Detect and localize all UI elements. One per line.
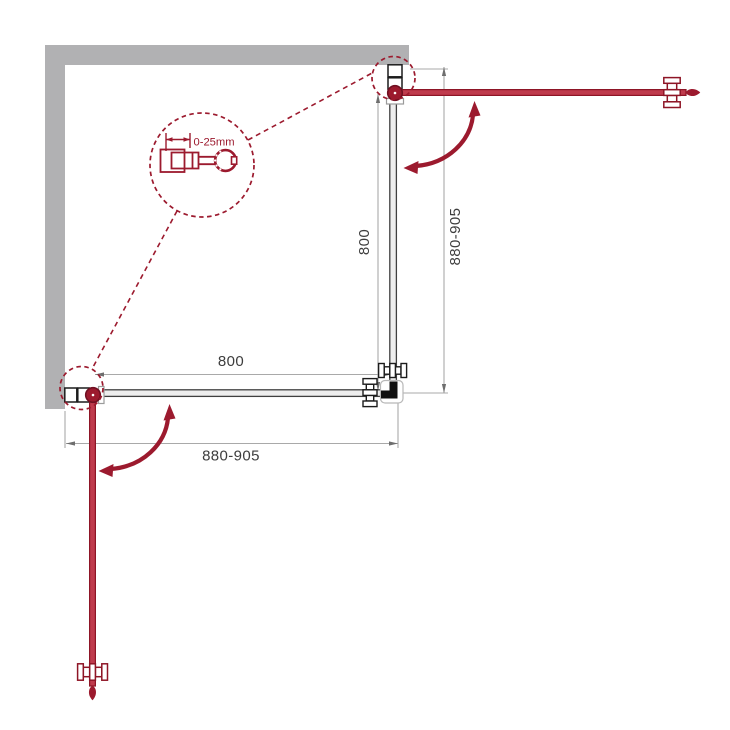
door-bottom-open-glass xyxy=(90,400,96,686)
arrow-880v-top xyxy=(442,67,446,76)
handle-waist xyxy=(395,367,401,374)
shower-enclosure-diagram: 800 880-905 800 880-905 0-25mm xyxy=(0,0,730,730)
dim-label-right-size: 800 xyxy=(356,229,373,255)
hinge-left-pin xyxy=(92,394,95,397)
door-bottom-open xyxy=(78,400,108,700)
handle-flange xyxy=(664,90,680,96)
handle-flange xyxy=(102,664,108,680)
glass-door-bottom-closed xyxy=(103,390,390,397)
handle-waist xyxy=(95,667,101,676)
door-top-open-glass xyxy=(400,90,686,96)
handle-waist xyxy=(667,95,676,101)
handle-flange xyxy=(401,364,407,378)
swing-arrowhead-up-icon xyxy=(164,404,176,421)
handle-top-open xyxy=(664,78,680,108)
wall-profiles xyxy=(65,65,402,402)
handle-flange xyxy=(390,364,396,378)
handle-flange xyxy=(664,78,680,84)
handle-flange xyxy=(363,401,377,407)
swing-arrowhead-left-icon xyxy=(99,464,114,477)
wall-profile-top-outer xyxy=(388,65,402,77)
handle-flange xyxy=(664,102,680,108)
corner-connector xyxy=(381,381,404,404)
handle-bottom-open xyxy=(78,664,108,680)
dim-label-bottom-size: 800 xyxy=(218,353,244,370)
handle-flange xyxy=(363,379,377,385)
handle-flange xyxy=(78,664,84,680)
handle-flange xyxy=(379,364,385,378)
leader-line-to-top-profile xyxy=(248,72,374,140)
arrow-880v-bottom xyxy=(442,384,446,393)
arrow-880h-right xyxy=(389,441,398,445)
arrow-880h-left xyxy=(66,441,75,445)
door-bottom-edge-tip xyxy=(89,686,96,700)
handle-flange xyxy=(90,664,96,680)
swing-arrow-top xyxy=(404,101,481,174)
detail-arrow-left xyxy=(166,137,173,142)
dim-label-right-overall: 880-905 xyxy=(447,208,464,266)
handle-waist xyxy=(83,667,89,676)
wall-profile-left-outer xyxy=(65,388,77,402)
handle-waist xyxy=(366,395,373,401)
swing-arrow-bottom xyxy=(99,404,176,477)
handle-flange xyxy=(363,390,377,396)
swing-arrowhead-left-icon xyxy=(404,161,419,174)
handle-bottom-closed xyxy=(363,379,377,407)
handle-right-closed xyxy=(379,364,407,378)
glass-panels-closed xyxy=(103,103,396,396)
detail-arrow-right xyxy=(184,137,191,142)
door-top-open xyxy=(400,78,700,108)
detail-adjustment-label: 0-25mm xyxy=(194,137,235,149)
dimension-labels: 800 880-905 800 880-905 0-25mm xyxy=(194,137,465,465)
diagram-canvas: 800 880-905 800 880-905 0-25mm xyxy=(0,0,730,730)
dim-label-bottom-overall: 880-905 xyxy=(202,448,260,465)
hinge-top-pin xyxy=(394,92,397,95)
handle-waist xyxy=(384,367,390,374)
wall-left xyxy=(45,45,65,409)
wall-top xyxy=(45,45,409,65)
door-top-edge-tip xyxy=(686,89,700,96)
glass-door-right-closed xyxy=(390,103,397,390)
leader-line-to-left-profile xyxy=(92,211,177,369)
handle-waist xyxy=(366,384,373,390)
swing-arrowhead-up-icon xyxy=(469,101,481,118)
handle-waist xyxy=(667,83,676,89)
